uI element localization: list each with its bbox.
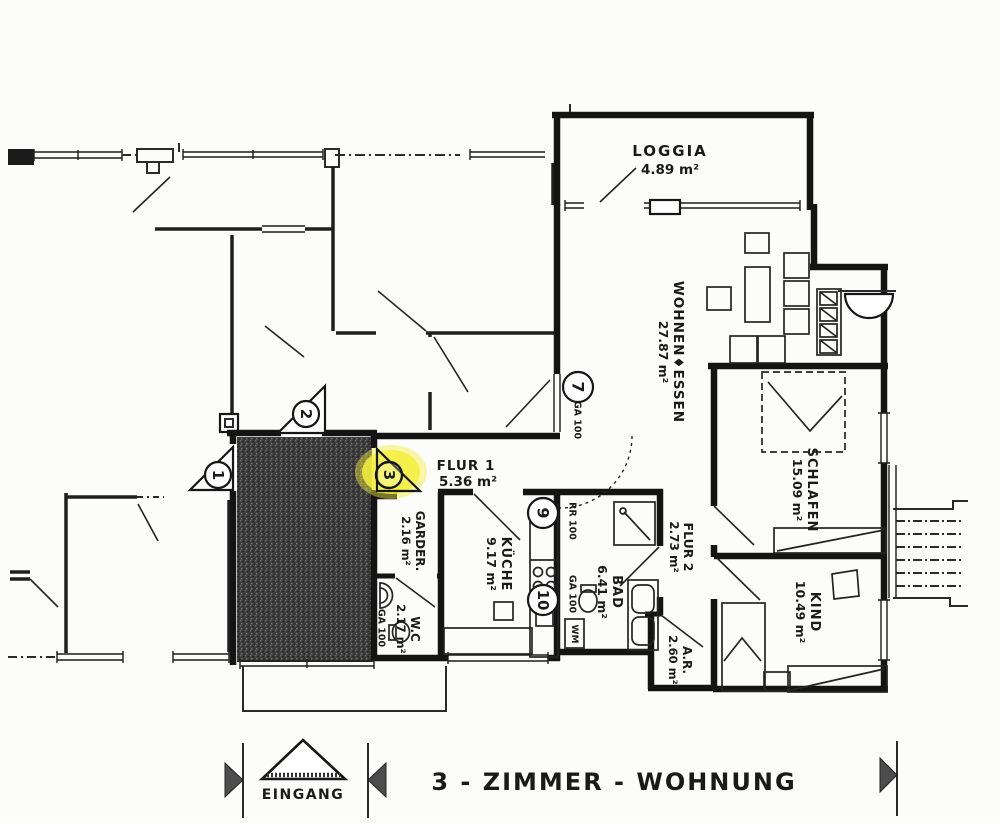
label-kueche: KÜCHE 9.17 m²	[484, 537, 514, 592]
door-3-symbol-highlighted[interactable]: 3	[355, 445, 427, 499]
entrance-label: EINGANG	[262, 787, 345, 803]
label-rr100: RR 100	[567, 502, 578, 540]
door-number-10: 10	[534, 590, 552, 611]
label-abstellraum: A.R. 2.60 m²	[666, 635, 694, 684]
section-arrow-mid	[368, 763, 386, 797]
label-wm: WM	[569, 625, 579, 644]
radiator-shelf	[817, 289, 841, 355]
label-schlafen: SCHLAFEN 15.09 m²	[790, 448, 819, 533]
label-wohnen: WOHNEN♦ESSEN 27.87 m²	[656, 281, 686, 423]
section-arrow-right	[880, 758, 897, 792]
label-loggia-area: 4.89 m²	[641, 162, 699, 178]
label-ga100-wc: GA 100	[376, 609, 387, 648]
svg-text:KIND: KIND	[807, 592, 822, 633]
door-1-symbol: 1	[190, 447, 233, 490]
door-number-1: 1	[209, 470, 227, 480]
label-flur2: FLUR 2 2.73 m²	[667, 521, 696, 573]
label-wc: W.C 2.17 m²	[394, 604, 422, 653]
door-9-symbol: 9	[528, 498, 558, 528]
label-loggia: LOGGIA	[632, 142, 708, 160]
svg-text:10.49 m²: 10.49 m²	[793, 581, 808, 643]
basin-niche	[838, 291, 896, 318]
label-flur1: FLUR 1	[437, 458, 496, 474]
label-garderobe: GARDER. 2.16 m²	[399, 511, 427, 572]
label-flur1-area: 5.36 m²	[439, 474, 497, 490]
wash-basin	[380, 583, 393, 608]
svg-text:KÜCHE: KÜCHE	[498, 537, 514, 592]
section-arrow-left	[225, 763, 243, 797]
door-10-symbol: 10	[528, 585, 558, 615]
floor-plan-page: 1 2 3 7 GA 100 9 10 LOGGIA 4	[0, 0, 1000, 823]
desk-kind	[832, 570, 859, 599]
svg-text:FLUR 2: FLUR 2	[681, 523, 696, 572]
bed-schlafen	[762, 372, 845, 452]
svg-text:2.17 m²: 2.17 m²	[394, 604, 408, 653]
svg-text:2.60 m²: 2.60 m²	[666, 635, 680, 684]
door-7-symbol: 7 GA 100	[563, 372, 593, 440]
plan-title: 3 - ZIMMER - WOHNUNG	[431, 768, 796, 796]
svg-text:A.R.: A.R.	[680, 646, 694, 674]
svg-text:15.09 m²: 15.09 m²	[790, 459, 805, 521]
door-number-7: 7	[569, 381, 588, 392]
svg-text:SCHLAFEN: SCHLAFEN	[804, 448, 819, 533]
svg-text:27.87 m²: 27.87 m²	[656, 321, 671, 383]
door-2-symbol: 2	[278, 386, 325, 433]
toilet-bad	[579, 590, 597, 612]
door-number-9: 9	[534, 507, 553, 518]
floor-plan-drawing: 1 2 3 7 GA 100 9 10 LOGGIA 4	[0, 0, 1000, 823]
svg-text:W.C: W.C	[408, 616, 422, 642]
svg-text:BAD: BAD	[609, 575, 624, 609]
staircase-core	[237, 437, 372, 662]
door-number-3: 3	[380, 470, 398, 480]
svg-text:6.41 m²: 6.41 m²	[595, 565, 610, 619]
label-bad: BAD 6.41 m²	[595, 565, 624, 619]
wohnen-door-swing	[560, 436, 632, 508]
svg-text:2.16 m²: 2.16 m²	[399, 516, 413, 565]
label-ga100-door7: GA 100	[572, 401, 583, 440]
svg-text:9.17 m²: 9.17 m²	[484, 537, 499, 591]
bed-kind	[722, 603, 765, 691]
label-ga100-bad: GA 100	[567, 575, 578, 614]
label-kind: KIND 10.49 m²	[793, 581, 822, 643]
svg-text:2.73 m²: 2.73 m²	[667, 521, 681, 573]
footer: EINGANG 3 - ZIMMER - WOHNUNG	[225, 740, 897, 818]
exterior-stairs	[889, 465, 968, 606]
svg-text:WOHNEN♦ESSEN: WOHNEN♦ESSEN	[670, 281, 686, 423]
door-number-2: 2	[297, 409, 315, 419]
svg-text:GARDER.: GARDER.	[413, 511, 427, 572]
